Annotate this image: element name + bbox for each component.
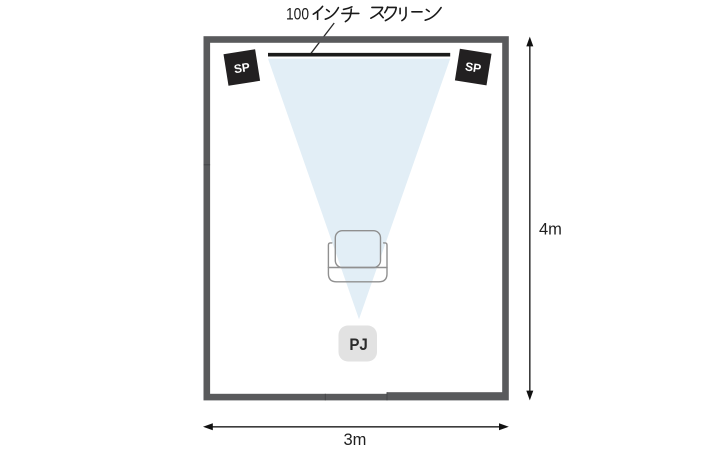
svg-text:PJ: PJ xyxy=(349,335,368,354)
svg-text:100: 100 xyxy=(286,5,309,23)
svg-text:SP: SP xyxy=(464,59,482,75)
svg-text:3m: 3m xyxy=(344,431,367,449)
svg-text:4m: 4m xyxy=(539,221,562,239)
svg-text:SP: SP xyxy=(233,60,251,76)
